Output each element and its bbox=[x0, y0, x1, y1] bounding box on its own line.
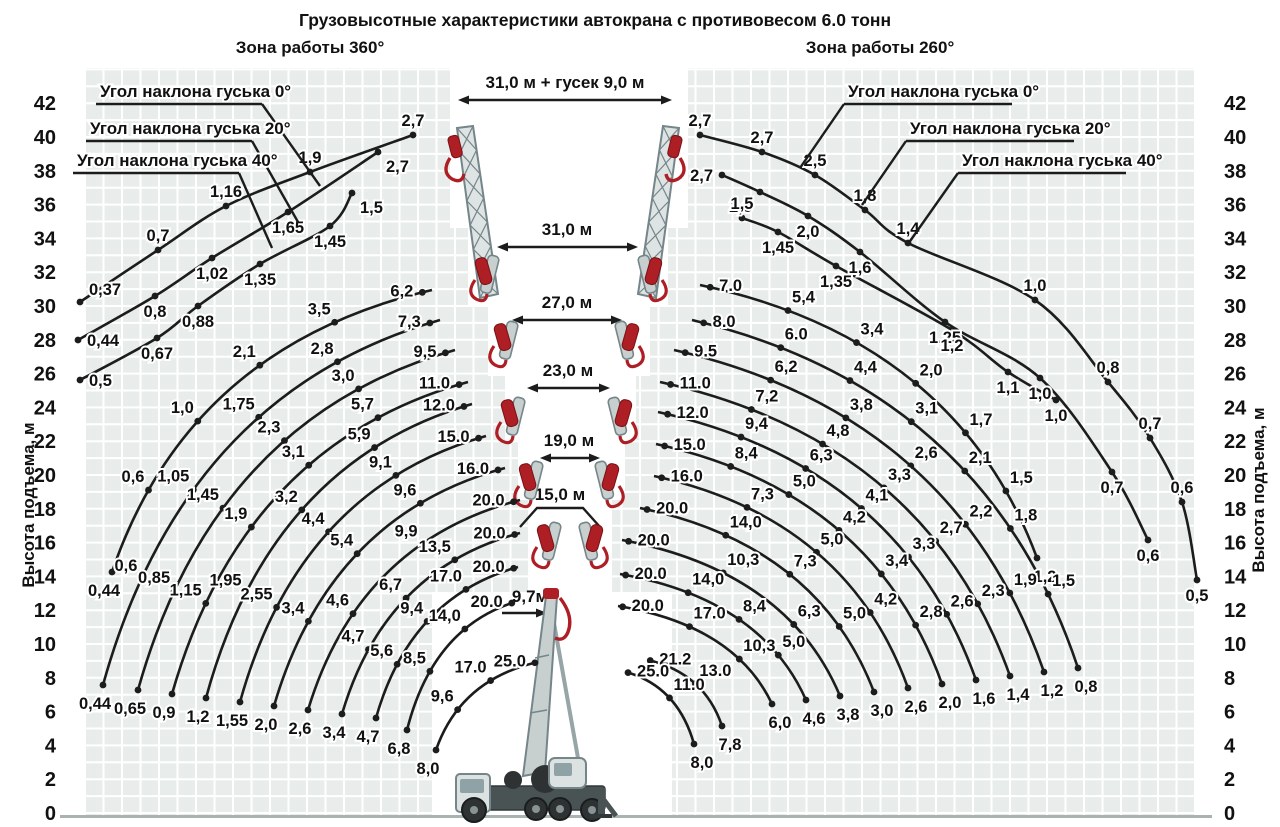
curve-value-label: 20.0 bbox=[474, 524, 506, 542]
y-tick-left: 36 bbox=[34, 195, 56, 217]
curve-value-label: 8,4 bbox=[743, 597, 767, 615]
y-tick-left: 42 bbox=[34, 93, 56, 115]
curve-value-label: 4,4 bbox=[302, 510, 326, 528]
curve-value-label: 20.0 bbox=[656, 500, 688, 518]
curve-value-label: 5,9 bbox=[348, 426, 371, 444]
load-chart-canvas: Высота подъема, м Высота подъема, м 4242… bbox=[0, 0, 1280, 827]
curve-value-label: 4,7 bbox=[357, 728, 380, 746]
curve-value-label: 11.0 bbox=[674, 676, 705, 694]
curve-value-label: 2,0 bbox=[920, 361, 943, 379]
curve-value-label: 2,6 bbox=[915, 444, 938, 462]
y-tick-left: 2 bbox=[45, 769, 56, 791]
curve-value-label: 0,6 bbox=[122, 468, 145, 486]
curve-value-label: 1,65 bbox=[272, 219, 304, 237]
curve-value-label: 15.0 bbox=[674, 436, 706, 454]
jib-angle-label: Угол наклона гуська 0° bbox=[100, 82, 291, 101]
y-tick-left: 22 bbox=[34, 431, 56, 453]
curve-value-label: 2,5 bbox=[804, 152, 827, 170]
curve-value-label: 2,7 bbox=[751, 129, 774, 147]
y-tick-right: 30 bbox=[1224, 296, 1246, 318]
curve-value-label: 6,3 bbox=[810, 446, 833, 464]
y-tick-right: 6 bbox=[1224, 702, 1235, 724]
boom-length-label: 23,0 м bbox=[543, 361, 593, 380]
curve-value-label: 13,5 bbox=[419, 538, 451, 556]
curve-value-label: 20.0 bbox=[471, 593, 503, 611]
jib-angle-label: Угол наклона гуська 40° bbox=[962, 151, 1163, 170]
curve-value-label: 1,2 bbox=[187, 708, 210, 726]
curve-value-label: 7,2 bbox=[755, 387, 778, 405]
curve-value-label: 11.0 bbox=[680, 374, 711, 392]
curve-value-label: 17.0 bbox=[694, 605, 726, 623]
y-tick-right: 22 bbox=[1224, 431, 1246, 453]
curve-value-label: 4,6 bbox=[803, 710, 826, 728]
curve-value-label: 17.0 bbox=[455, 659, 487, 677]
curve-value-label: 0,9 bbox=[153, 704, 176, 722]
curve-value-label: 14,0 bbox=[692, 571, 724, 589]
curve-value-label: 17.0 bbox=[430, 567, 462, 585]
curve-value-label: 2,0 bbox=[797, 223, 820, 241]
curve-value-label: 3,8 bbox=[850, 396, 873, 414]
curve-value-label: 6,7 bbox=[379, 576, 402, 594]
jib-angle-label: Угол наклона гуська 20° bbox=[910, 119, 1111, 138]
boom-length-label: 15,0 м bbox=[535, 485, 585, 504]
y-tick-right: 38 bbox=[1224, 161, 1246, 183]
curve-value-label: 0,37 bbox=[89, 281, 121, 299]
curve-value-label: 3,0 bbox=[871, 702, 894, 720]
y-tick-right: 2 bbox=[1224, 769, 1235, 791]
curve-value-label: 1,75 bbox=[223, 395, 255, 413]
y-tick-left: 28 bbox=[34, 330, 56, 352]
boom-min-label: 9,7м bbox=[512, 587, 548, 606]
curve-value-label: 14,0 bbox=[429, 607, 461, 625]
curve-value-label: 3,8 bbox=[837, 706, 860, 724]
curve-value-label: 2,7 bbox=[386, 158, 409, 176]
curve-value-label: 1,0 bbox=[1045, 407, 1068, 425]
curve-value-label: 3,0 bbox=[332, 367, 355, 385]
y-tick-right: 20 bbox=[1224, 465, 1246, 487]
y-tick-right: 28 bbox=[1224, 330, 1246, 352]
y-tick-right: 10 bbox=[1224, 634, 1246, 656]
jib-angle-label: Угол наклона гуська 20° bbox=[90, 119, 291, 138]
curve-value-label: 6,3 bbox=[798, 602, 821, 620]
curve-value-label: 2,7 bbox=[402, 112, 425, 130]
curve-value-label: 0,88 bbox=[182, 313, 214, 331]
y-tick-right: 0 bbox=[1224, 803, 1235, 825]
curve-value-label: 7,3 bbox=[751, 485, 774, 503]
curve-value-label: 16.0 bbox=[457, 460, 489, 478]
curve-value-label: 14,0 bbox=[730, 513, 762, 531]
curve-value-label: 4,2 bbox=[843, 508, 866, 526]
curve-value-label: 15.0 bbox=[437, 428, 469, 446]
curve-value-label: 0,7 bbox=[147, 227, 170, 245]
curve-value-label: 2,8 bbox=[920, 603, 943, 621]
curve-value-label: 3,3 bbox=[912, 535, 935, 553]
curve-value-label: 2,3 bbox=[258, 419, 281, 437]
curve-value-label: 1,02 bbox=[196, 265, 228, 283]
curve-value-label: 0,7 bbox=[1101, 479, 1124, 497]
curve-value-label: 0,6 bbox=[1137, 547, 1160, 565]
curve-value-label: 2,55 bbox=[240, 585, 272, 603]
curve-value-label: 2,0 bbox=[255, 716, 278, 734]
y-tick-left: 16 bbox=[34, 533, 56, 555]
curve-value-label: 20.0 bbox=[632, 597, 664, 615]
curve-value-label: 0,5 bbox=[89, 372, 112, 390]
curve-value-label: 20.0 bbox=[473, 558, 505, 576]
curve-value-label: 3,4 bbox=[885, 552, 909, 570]
y-tick-left: 38 bbox=[34, 161, 56, 183]
curve-value-label: 10,3 bbox=[743, 637, 775, 655]
curve-value-label: 1,5 bbox=[731, 195, 754, 213]
curve-value-label: 20.0 bbox=[635, 565, 667, 583]
curve-value-label: 1,2 bbox=[1041, 682, 1064, 700]
curve-value-label: 4,8 bbox=[827, 422, 850, 440]
y-tick-left: 14 bbox=[34, 566, 57, 588]
y-tick-right: 12 bbox=[1224, 600, 1246, 622]
curve-value-label: 11.0 bbox=[419, 375, 450, 393]
y-tick-right: 18 bbox=[1224, 499, 1246, 521]
curve-value-label: 0,6 bbox=[1171, 479, 1194, 497]
curve-value-label: 8,0 bbox=[691, 754, 714, 772]
curve-value-label: 1,9 bbox=[1014, 571, 1037, 589]
y-tick-left: 34 bbox=[34, 228, 57, 250]
curve-value-label: 0,65 bbox=[114, 700, 146, 718]
curve-value-label: 5,6 bbox=[370, 642, 393, 660]
y-tick-left: 12 bbox=[34, 600, 56, 622]
y-tick-left: 26 bbox=[34, 364, 56, 386]
curve-value-label: 9,9 bbox=[395, 522, 418, 540]
jib-angle-label: Угол наклона гуська 40° bbox=[77, 151, 278, 170]
curve-value-label: 1,9 bbox=[299, 149, 322, 167]
curve-value-label: 3,4 bbox=[323, 724, 347, 742]
zone-label-360: Зона работы 360° bbox=[160, 38, 460, 58]
curve-value-label: 6,2 bbox=[390, 282, 413, 300]
y-tick-right: 40 bbox=[1224, 127, 1246, 149]
curve-value-label: 3,3 bbox=[888, 466, 911, 484]
curve-value-label: 7,8 bbox=[719, 736, 742, 754]
curve-value-label: 1,8 bbox=[1014, 506, 1037, 524]
curve-value-label: 2,8 bbox=[311, 340, 334, 358]
curve-value-label: 1,6 bbox=[973, 690, 996, 708]
curve-value-label: 20.0 bbox=[472, 492, 504, 510]
y-tick-right: 4 bbox=[1224, 735, 1236, 757]
curve-value-label: 16.0 bbox=[671, 468, 703, 486]
curve-value-label: 2,0 bbox=[939, 694, 962, 712]
curve-value-label: 1,55 bbox=[216, 712, 248, 730]
curve-value-label: 0,44 bbox=[88, 582, 121, 600]
curve-value-label: 4,6 bbox=[326, 592, 349, 610]
curve-value-label: 1,15 bbox=[170, 581, 202, 599]
crane-load-chart-page: Грузовысотные характеристики автокрана с… bbox=[0, 0, 1280, 827]
curve-value-label: 8,4 bbox=[735, 444, 759, 462]
y-tick-left: 24 bbox=[34, 397, 57, 419]
curve-value-label: 2,1 bbox=[233, 343, 256, 361]
curve-value-label: 1,7 bbox=[969, 411, 992, 429]
curve-value-label: 9.5 bbox=[694, 343, 717, 361]
curve-value-label: 2,1 bbox=[969, 449, 992, 467]
curve-value-label: 1,95 bbox=[209, 571, 241, 589]
y-tick-right: 42 bbox=[1224, 93, 1246, 115]
curve-value-label: 4,1 bbox=[866, 486, 889, 504]
y-tick-left: 10 bbox=[34, 634, 56, 656]
y-tick-left: 40 bbox=[34, 127, 56, 149]
curve-value-label: 6,8 bbox=[388, 740, 411, 758]
zone-label-260: Зона работы 260° bbox=[730, 38, 1030, 58]
y-tick-left: 6 bbox=[45, 702, 56, 724]
curve-value-label: 5,0 bbox=[782, 633, 805, 651]
curve-value-label: 4,7 bbox=[342, 628, 365, 646]
curve-value-label: 2,7 bbox=[940, 519, 963, 537]
curve-value-label: 20.0 bbox=[638, 531, 670, 549]
curve-value-label: 6,0 bbox=[769, 714, 792, 732]
curve-value-label: 1,45 bbox=[187, 486, 219, 504]
curve-value-label: 1,35 bbox=[820, 273, 852, 291]
curve-value-label: 0,67 bbox=[141, 345, 173, 363]
curve-value-label: 1,1 bbox=[997, 379, 1020, 397]
curve-value-label: 3,1 bbox=[915, 400, 938, 418]
curve-value-label: 1,45 bbox=[314, 233, 346, 251]
curve-value-label: 1,4 bbox=[897, 220, 921, 238]
y-tick-right: 16 bbox=[1224, 533, 1246, 555]
curve-value-label: 1,0 bbox=[171, 399, 194, 417]
curve-value-label: 7,3 bbox=[794, 552, 817, 570]
y-tick-left: 30 bbox=[34, 296, 56, 318]
curve-value-label: 4,4 bbox=[854, 359, 878, 377]
curve-value-label: 12.0 bbox=[677, 404, 709, 422]
curve-value-label: 0,44 bbox=[79, 695, 112, 713]
curve-value-label: 0,8 bbox=[1075, 678, 1098, 696]
curve-value-label: 7,3 bbox=[398, 313, 421, 331]
curve-value-label: 6,2 bbox=[775, 358, 798, 376]
y-tick-right: 34 bbox=[1224, 228, 1247, 250]
y-tick-right: 24 bbox=[1224, 397, 1247, 419]
curve-value-label: 7.0 bbox=[719, 277, 742, 295]
curve-value-label: 4,2 bbox=[874, 591, 897, 609]
curve-value-label: 1,9 bbox=[224, 505, 247, 523]
curve-value-label: 1,05 bbox=[157, 468, 189, 486]
curve-value-label: 9,6 bbox=[431, 688, 454, 706]
y-tick-right: 32 bbox=[1224, 262, 1246, 284]
curve-value-label: 3,5 bbox=[308, 300, 331, 318]
y-tick-left: 8 bbox=[45, 668, 56, 690]
curve-value-label: 9,5 bbox=[413, 343, 436, 361]
curve-value-label: 5,0 bbox=[821, 530, 844, 548]
curve-value-label: 9,4 bbox=[400, 599, 424, 617]
curve-value-label: 1,0 bbox=[1029, 385, 1052, 403]
curve-value-label: 2,7 bbox=[690, 167, 713, 185]
curve-value-label: 1,2 bbox=[941, 337, 964, 355]
curve-value-label: 9,4 bbox=[745, 415, 769, 433]
jib-angle-label: Угол наклона гуська 0° bbox=[848, 82, 1039, 101]
curve-value-label: 2,7 bbox=[689, 112, 712, 130]
curve-value-label: 3,4 bbox=[281, 599, 305, 617]
boom-length-label: 19,0 м bbox=[544, 431, 594, 450]
curve-value-label: 2,6 bbox=[905, 698, 928, 716]
curve-value-label: 1,5 bbox=[1052, 572, 1075, 590]
curve-value-label: 0,85 bbox=[138, 569, 170, 587]
curve-value-label: 0,5 bbox=[1186, 587, 1209, 605]
curve-value-label: 1,35 bbox=[244, 271, 276, 289]
boom-length-label: 31,0 м bbox=[542, 220, 592, 239]
curve-value-label: 5,0 bbox=[793, 473, 816, 491]
curve-value-label: 12.0 bbox=[423, 396, 455, 414]
curve-value-label: 3,1 bbox=[282, 443, 305, 461]
curve-value-label: 2,2 bbox=[969, 502, 992, 520]
curve-value-label: 1,5 bbox=[360, 199, 383, 217]
boom-length-label: 31,0 м + гусек 9,0 м bbox=[486, 73, 645, 92]
curve-value-label: 9,6 bbox=[393, 481, 416, 499]
boom-length-label: 27,0 м bbox=[542, 293, 592, 312]
curve-value-label: 5,4 bbox=[792, 289, 816, 307]
y-tick-left: 32 bbox=[34, 262, 56, 284]
curve-value-label: 25.0 bbox=[637, 663, 669, 681]
curve-value-label: 8,5 bbox=[403, 649, 426, 667]
curve-value-label: 3,4 bbox=[861, 321, 885, 339]
y-tick-right: 14 bbox=[1224, 566, 1247, 588]
curve-value-label: 0,6 bbox=[114, 557, 137, 575]
curve-value-label: 1,5 bbox=[1010, 469, 1033, 487]
y-tick-right: 36 bbox=[1224, 195, 1246, 217]
y-tick-right: 26 bbox=[1224, 364, 1246, 386]
page-title: Грузовысотные характеристики автокрана с… bbox=[140, 10, 1050, 31]
y-tick-left: 0 bbox=[45, 803, 56, 825]
curve-value-label: 1,4 bbox=[1007, 686, 1031, 704]
y-axis-label-right: Высота подъема, м bbox=[1249, 407, 1268, 572]
curve-value-label: 10,3 bbox=[727, 551, 759, 569]
curve-value-label: 6.0 bbox=[785, 326, 808, 344]
curve-value-label: 2,6 bbox=[289, 720, 312, 738]
curve-value-label: 0,7 bbox=[1139, 415, 1162, 433]
y-tick-left: 20 bbox=[34, 465, 56, 487]
curve-value-label: 2,3 bbox=[982, 582, 1005, 600]
curve-value-label: 3,2 bbox=[275, 488, 298, 506]
curve-value-label: 1,45 bbox=[762, 239, 794, 257]
y-tick-left: 4 bbox=[45, 735, 57, 757]
curve-value-label: 5,0 bbox=[843, 604, 866, 622]
curve-value-label: 2,6 bbox=[951, 592, 974, 610]
curve-value-label: 8.0 bbox=[713, 313, 736, 331]
curve-value-label: 5,7 bbox=[351, 396, 374, 414]
curve-value-label: 25.0 bbox=[494, 653, 526, 671]
y-tick-left: 18 bbox=[34, 499, 56, 521]
curve-value-label: 5,4 bbox=[330, 532, 354, 550]
curve-value-label: 9,1 bbox=[369, 453, 392, 471]
curve-value-label: 0,8 bbox=[1097, 359, 1120, 377]
curve-value-label: 0,44 bbox=[87, 332, 120, 350]
curve-value-label: 0,8 bbox=[144, 303, 167, 321]
curve-value-label: 1,16 bbox=[210, 183, 242, 201]
curve-value-label: 1,0 bbox=[1024, 277, 1047, 295]
y-tick-right: 8 bbox=[1224, 668, 1235, 690]
curve-value-label: 8,0 bbox=[417, 760, 440, 778]
